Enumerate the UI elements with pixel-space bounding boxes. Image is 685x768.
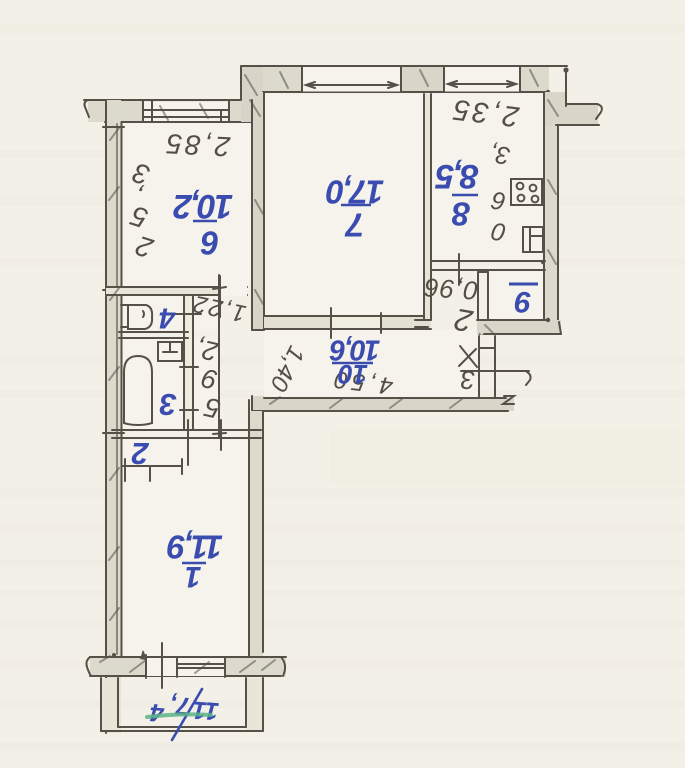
svg-text:3: 3 xyxy=(460,365,475,395)
svg-text:2: 2 xyxy=(131,436,149,471)
svg-text:1: 1 xyxy=(185,560,202,593)
svg-text:8: 8 xyxy=(451,195,470,232)
svg-text:10: 10 xyxy=(338,359,368,389)
svg-text:9: 9 xyxy=(514,285,531,318)
svg-text:3: 3 xyxy=(159,387,176,422)
svg-text:7: 7 xyxy=(344,206,364,243)
svg-text:4: 4 xyxy=(149,698,166,727)
svg-text:6: 6 xyxy=(200,224,219,261)
svg-text:8,5: 8,5 xyxy=(434,157,478,195)
svg-text:2,85: 2,85 xyxy=(163,128,232,162)
svg-text:0,96: 0,96 xyxy=(423,272,480,306)
svg-text:10,2: 10,2 xyxy=(173,187,233,225)
svg-text:11,9: 11,9 xyxy=(166,528,222,565)
svg-text:4: 4 xyxy=(159,301,176,333)
